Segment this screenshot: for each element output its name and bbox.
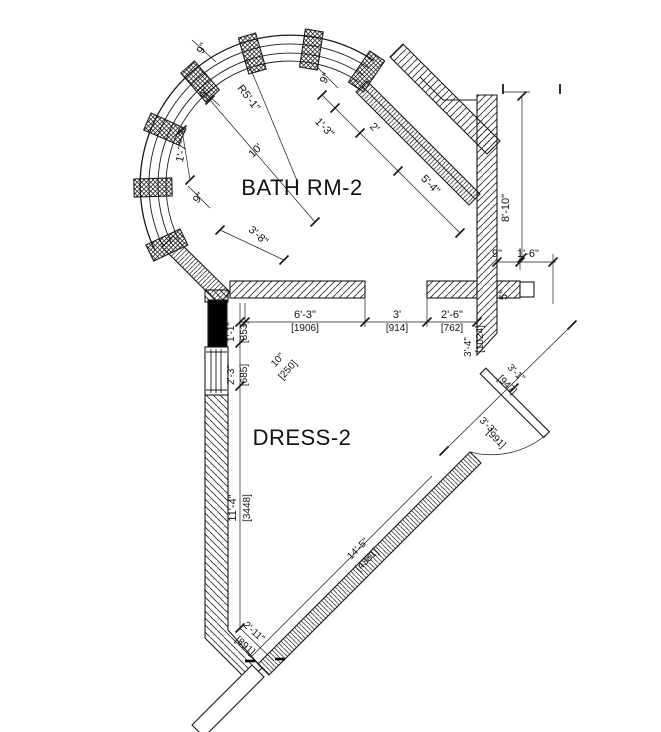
floor-plan: BATH RM-2 DRESS-2 9" 9" R5'-1" 10' 1'-7"… [0,0,661,732]
dim-right-3-4-mm: [1024] [475,325,486,353]
dim-v-2-3-mm: [685] [239,364,250,386]
column [208,300,227,347]
dim-ne-5-4: 5'-4" [418,173,442,197]
dim-right-1-6: 1'-6" [517,248,539,260]
dim-bay-9-c: 9" [191,190,207,205]
interior-wall-right [427,281,477,298]
dim-ne-9: 9" [318,71,333,86]
door-jamb [520,282,534,297]
left-window [205,347,228,395]
ne-structure [356,44,500,355]
dim-v-1-1: 1'-1" [226,322,237,342]
dim-door-3-3-mm: [991] [484,427,508,451]
dim-h-6-3: 6'-3" [294,309,316,321]
dim-v-11-4: 11'-4" [227,494,239,521]
right-wall [477,95,497,355]
dim-bay-10: 10' [247,142,266,161]
left-wall [205,290,262,681]
dim-h-2-6: 2'-6" [441,309,463,321]
dim-h-3: 3' [393,309,401,321]
room-label-dress: DRESS-2 [253,425,352,450]
dim-right-8-10: 8'-10" [500,194,512,222]
interior-wall-left [230,281,365,298]
wall-stub-sw [192,665,264,732]
se-wall [192,452,481,732]
dim-bay-9-a: 9" [195,41,210,56]
floor-plan-drawing: BATH RM-2 DRESS-2 9" 9" R5'-1" 10' 1'-7"… [0,0,661,732]
dim-v-11-4-mm: [3448] [242,494,253,522]
dim-h-6-3-mm: [1906] [291,323,319,334]
dim-h-3-mm: [914] [386,323,408,334]
dim-right-9: 9" [492,248,502,260]
dim-ne-1-3: 1'-3" [312,116,336,140]
dim-v-2-3: 2'-3" [226,365,237,385]
dim-v-1-1-mm: [353] [239,321,250,343]
dim-right-3-4: 3'-4" [463,337,474,357]
bay-mullion [238,33,266,74]
room-label-bath: BATH RM-2 [241,175,362,200]
bay-mullion [134,178,172,197]
dimension-lines [182,40,575,661]
dim-ne-2: 2' [367,121,381,135]
dim-right-5: 5" [498,290,510,300]
dim-h-2-6-mm: [762] [441,323,463,334]
door-arc [470,434,547,455]
